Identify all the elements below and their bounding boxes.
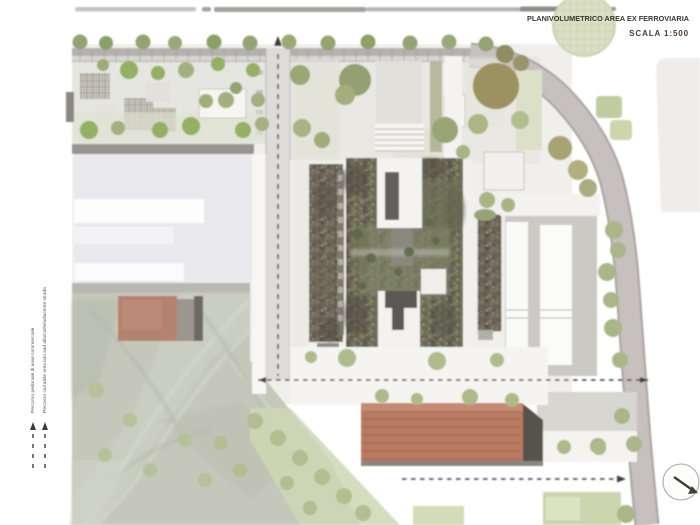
- svg-text:PLANIVOLUMETRICO AREA EX FERRO: PLANIVOLUMETRICO AREA EX FERROVIARIA: [527, 14, 690, 23]
- svg-text:Percorso carrabile area lato s: Percorso carrabile area lato sud alta/ci…: [42, 287, 48, 413]
- svg-text:Percorso pedonale di asse comm: Percorso pedonale di asse commerciale: [30, 327, 36, 413]
- svg-text:SCALA 1:500: SCALA 1:500: [629, 29, 689, 38]
